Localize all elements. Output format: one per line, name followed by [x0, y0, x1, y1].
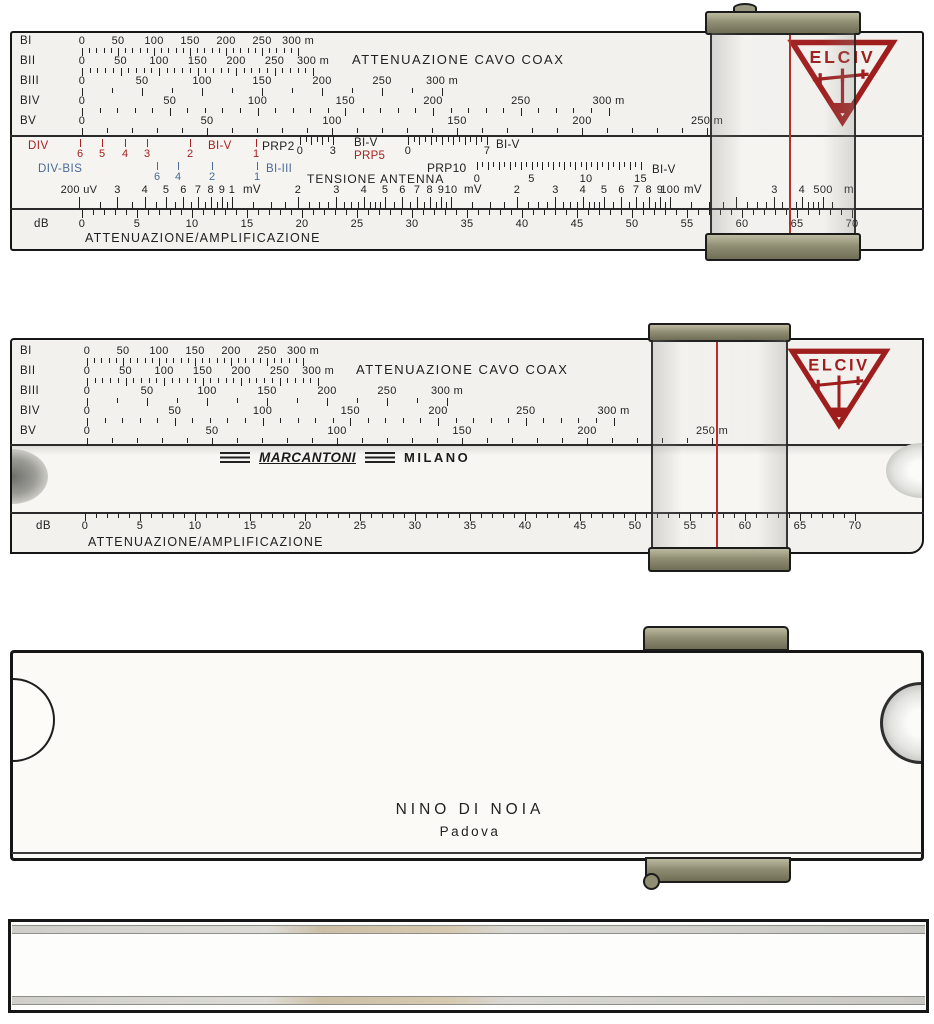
edge-bottom-rail: [12, 996, 925, 1005]
cursor-bottom-cap[interactable]: [705, 233, 861, 261]
owner-city: Padova: [440, 824, 501, 839]
cursor-spring-hook: [643, 873, 660, 890]
cursor-bottom-cap[interactable]: [645, 857, 791, 883]
cursor-glass[interactable]: [651, 340, 788, 549]
cursor-top-cap[interactable]: [705, 11, 861, 35]
edge-top-rail: [12, 925, 925, 934]
owner-name: NINO DI NOIA: [396, 801, 545, 819]
speedlines-icon: [365, 452, 395, 463]
brand-name: ELCIV: [808, 356, 869, 374]
back-edge-line: [12, 852, 922, 854]
cursor-glass[interactable]: [710, 33, 856, 234]
cursor-hairline: [789, 35, 791, 233]
speedlines-icon: [220, 452, 250, 463]
cursor-bottom-cap[interactable]: [648, 547, 791, 572]
scan-canvas: MARCANTONI MILANO NINO DI NOIA Padova BI…: [0, 0, 934, 1024]
elciv-logo: ELCIV: [787, 345, 891, 432]
maker-city: MILANO: [404, 450, 470, 465]
cursor-hairline: [716, 342, 718, 547]
maker-name: MARCANTONI: [259, 450, 356, 465]
maker-logo: MARCANTONI MILANO: [220, 450, 470, 465]
cursor-top-cap[interactable]: [643, 626, 789, 651]
